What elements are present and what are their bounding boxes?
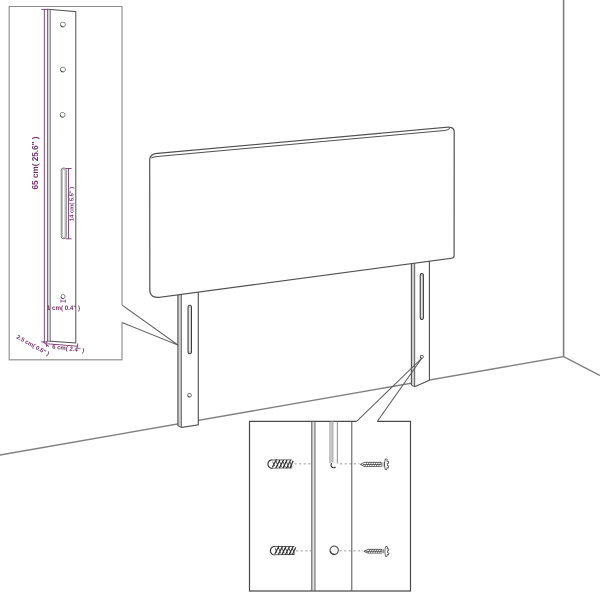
- svg-text:65 cm( 25.6" ): 65 cm( 25.6" ): [31, 136, 40, 189]
- svg-text:14 cm( 5.5" ): 14 cm( 5.5" ): [69, 187, 75, 221]
- svg-text:1 cm( 0.4" ): 1 cm( 0.4" ): [47, 305, 80, 312]
